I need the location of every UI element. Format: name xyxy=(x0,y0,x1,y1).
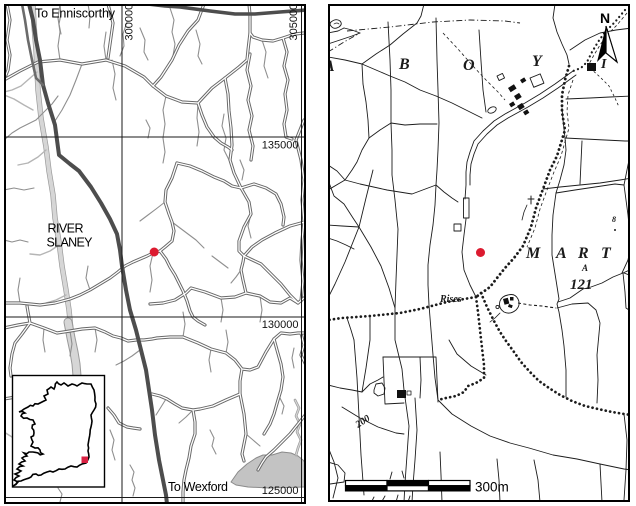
svg-text:A: A xyxy=(581,263,588,273)
svg-text:125000: 125000 xyxy=(262,485,299,497)
svg-text:300m: 300m xyxy=(475,480,509,495)
svg-text:To Enniscorthy: To Enniscorthy xyxy=(35,7,116,21)
svg-text:RIVER: RIVER xyxy=(48,222,84,236)
svg-text:305000: 305000 xyxy=(288,4,300,41)
svg-text:A: A xyxy=(555,245,567,262)
svg-text:121: 121 xyxy=(570,277,593,293)
svg-text:Y: Y xyxy=(532,53,543,70)
svg-text:I: I xyxy=(600,57,607,72)
svg-text:O: O xyxy=(463,57,475,74)
svg-text:M: M xyxy=(525,245,541,262)
svg-text:B: B xyxy=(398,56,410,73)
svg-text:To Wexford: To Wexford xyxy=(168,480,228,494)
svg-text:130000: 130000 xyxy=(262,319,299,331)
svg-text:SLANEY: SLANEY xyxy=(47,236,94,250)
svg-text:R: R xyxy=(577,245,589,262)
svg-text:8: 8 xyxy=(612,215,616,224)
svg-text:N: N xyxy=(600,10,610,26)
svg-text:Rises: Rises xyxy=(439,294,462,305)
svg-text:300000: 300000 xyxy=(124,4,136,41)
svg-text:135000: 135000 xyxy=(262,140,299,152)
svg-text:T: T xyxy=(601,245,612,262)
